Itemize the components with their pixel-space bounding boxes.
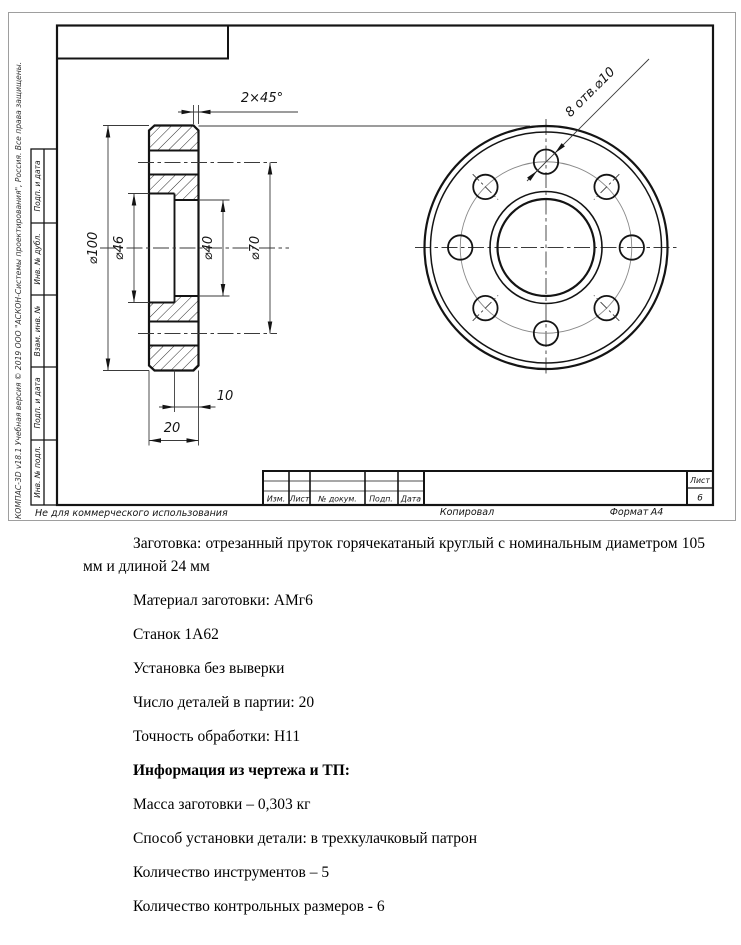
dim-chamfer: 2×45° xyxy=(241,91,283,106)
engineering-drawing: Подп. и дата Инв. № дубл. Взам. инв. № П… xyxy=(0,0,741,530)
side-label-inv-dubl: Инв. № дубл. xyxy=(33,233,42,284)
note-blank-description: Заготовка: отрезанный пруток горячекатан… xyxy=(83,533,705,578)
format-value: А4 xyxy=(650,507,664,518)
note-info-heading: Информация из чертежа и ТП: xyxy=(83,760,705,783)
format-label: Формат xyxy=(610,507,649,518)
tb-col-data: Дата xyxy=(400,495,421,504)
tb-col-doc: № докум. xyxy=(317,495,356,504)
note-accuracy: Точность обработки: Н11 xyxy=(83,726,705,749)
dim-d70: ⌀70 xyxy=(248,236,263,260)
side-label-inv-podl: Инв. № подл. xyxy=(33,446,42,498)
note-tools-count: Количество инструментов – 5 xyxy=(83,862,705,885)
note-batch-count: Число деталей в партии: 20 xyxy=(83,692,705,715)
drawing-frame xyxy=(57,26,713,506)
dim-d46: ⌀46 xyxy=(112,236,127,260)
holes-leader-line xyxy=(527,59,649,181)
tb-col-list: Лист xyxy=(289,495,310,504)
title-block: Изм. Лист № докум. Подп. Дата Лист 6 xyxy=(263,471,713,505)
note-setup: Установка без выверки xyxy=(83,658,705,681)
dim-holes-callout: 8 отв.⌀10 xyxy=(563,65,619,121)
tb-sheet-number: 6 xyxy=(697,494,703,504)
section-dim-arrows xyxy=(106,110,273,443)
section-view: ⌀100 ⌀46 ⌀40 ⌀70 2×45° 10 20 xyxy=(86,91,530,446)
tb-col-izm: Изм. xyxy=(267,495,285,504)
bottom-margin: Не для коммерческого использования Копир… xyxy=(35,507,663,519)
dim-d40: ⌀40 xyxy=(201,236,216,260)
front-view: 8 отв.⌀10 xyxy=(415,59,677,376)
title-block-labels: Изм. Лист № докум. Подп. Дата Лист 6 xyxy=(267,476,711,504)
tb-col-podp: Подп. xyxy=(369,495,393,504)
top-left-stamp-box xyxy=(57,26,228,59)
no-commercial-note: Не для коммерческого использования xyxy=(35,508,228,519)
side-label-vzam-inv: Взам. инв. № xyxy=(33,305,42,356)
dim-10: 10 xyxy=(217,389,234,404)
notes-block: Заготовка: отрезанный пруток горячекатан… xyxy=(83,533,705,930)
left-stamp-labels: Подп. и дата Инв. № дубл. Взам. инв. № П… xyxy=(33,160,42,498)
side-label-podp-data-1: Подп. и дата xyxy=(33,160,42,211)
note-material: Материал заготовки: АМг6 xyxy=(83,590,705,613)
kompas-watermark: КОМПАС-3D v18.1 Учебная версия © 2019 ОО… xyxy=(14,62,23,519)
tb-sheet-word: Лист xyxy=(689,476,710,485)
note-control-dims-count: Количество контрольных размеров - 6 xyxy=(83,896,705,919)
dim-20: 20 xyxy=(164,421,181,436)
note-mass: Масса заготовки – 0,303 кг xyxy=(83,794,705,817)
note-mounting: Способ установки детали: в трехкулачковы… xyxy=(83,828,705,851)
copied-by-label: Копировал xyxy=(440,507,494,518)
sheet-outer-border xyxy=(9,13,736,521)
note-machine: Станок 1А62 xyxy=(83,624,705,647)
dim-d100: ⌀100 xyxy=(86,232,101,265)
front-centerlines xyxy=(415,119,677,376)
side-label-podp-data-2: Подп. и дата xyxy=(33,377,42,428)
page: Подп. и дата Инв. № дубл. Взам. инв. № П… xyxy=(0,0,741,945)
